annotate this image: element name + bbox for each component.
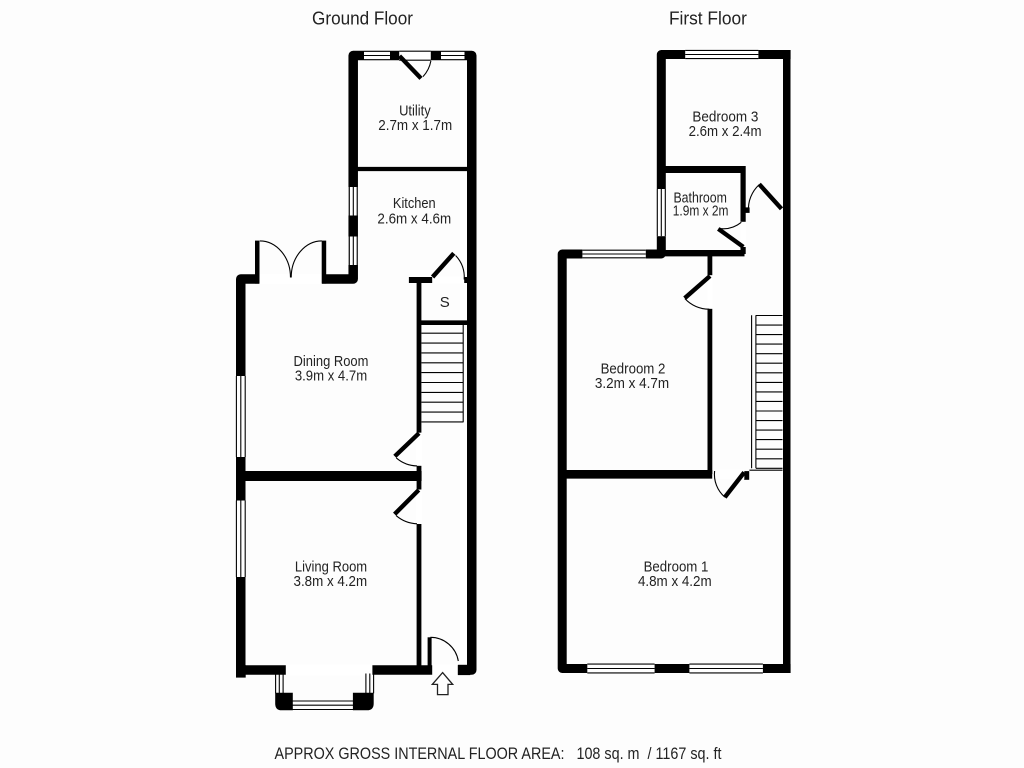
svg-text:Kitchen: Kitchen [393, 195, 436, 212]
svg-text:First Floor: First Floor [669, 9, 747, 29]
svg-text:1.9m x 2m: 1.9m x 2m [673, 203, 729, 220]
svg-text:4.8m x 4.2m: 4.8m x 4.2m [638, 573, 712, 590]
svg-text:3.9m x 4.7m: 3.9m x 4.7m [295, 368, 367, 385]
svg-text:3.2m x 4.7m: 3.2m x 4.7m [595, 375, 669, 392]
svg-text:Ground Floor: Ground Floor [312, 9, 413, 29]
svg-text:2.6m x 2.4m: 2.6m x 2.4m [689, 123, 762, 140]
svg-text:APPROX GROSS INTERNAL FLOOR AR: APPROX GROSS INTERNAL FLOOR AREA: 108 sq… [275, 744, 722, 763]
svg-text:2.6m x 4.6m: 2.6m x 4.6m [377, 211, 451, 228]
svg-text:3.8m x 4.2m: 3.8m x 4.2m [294, 573, 368, 590]
svg-text:2.7m x 1.7m: 2.7m x 1.7m [378, 117, 452, 134]
svg-text:S: S [440, 294, 450, 311]
